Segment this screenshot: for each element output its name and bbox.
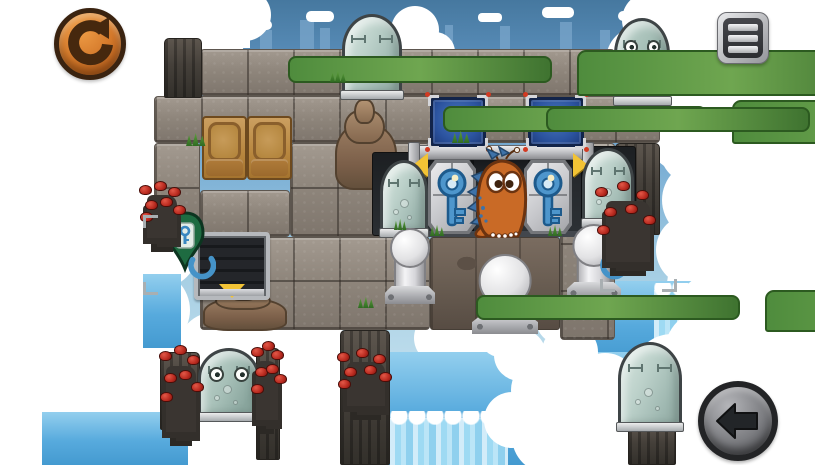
key-pickup[interactable] — [530, 163, 566, 231]
capsule-base — [613, 96, 672, 106]
dark-rock — [340, 330, 390, 465]
dark-rock — [256, 348, 280, 460]
glass-capsule[interactable] — [342, 14, 402, 98]
hamburger-icon — [723, 18, 763, 58]
cactus-plant — [732, 100, 815, 144]
grass-tuft — [548, 224, 564, 236]
entity-layer — [0, 0, 815, 465]
metal-tile — [524, 160, 572, 234]
piston[interactable] — [385, 228, 435, 304]
water — [42, 412, 188, 465]
city-skyline — [260, 18, 650, 56]
water — [545, 281, 705, 361]
creature-eye — [209, 367, 224, 382]
capsule-base — [379, 228, 429, 238]
corner-bracket-icon — [428, 95, 439, 106]
grass-tuft — [186, 132, 208, 146]
glass-capsule[interactable] — [380, 160, 428, 236]
metal-tile — [428, 160, 476, 234]
down-arrow-icon — [219, 284, 245, 298]
creature-eye — [234, 367, 249, 382]
current-swirl-icon — [598, 252, 628, 286]
wall-recess — [578, 146, 636, 228]
creature-eye — [624, 40, 638, 54]
boundary-bracket — [143, 282, 158, 295]
stone-platform — [200, 49, 615, 96]
grass-tuft — [394, 218, 408, 230]
grass-tuft — [430, 224, 446, 236]
water-layer — [0, 0, 815, 465]
berry-bush — [250, 344, 284, 420]
berry-bush — [594, 184, 662, 262]
door-bay — [419, 157, 583, 237]
glass-capsule[interactable] — [618, 342, 682, 430]
corner-bracket-icon — [477, 138, 488, 149]
yellow-arrow-icon — [413, 153, 428, 177]
back-button[interactable] — [698, 381, 778, 461]
cactus-plant — [765, 290, 815, 332]
glass-capsule[interactable] — [614, 18, 670, 104]
crate[interactable] — [202, 116, 247, 180]
rotate-ccw-icon — [59, 13, 121, 75]
cactus-plant — [577, 50, 815, 96]
restart-button[interactable] — [54, 8, 126, 80]
dark-rock — [164, 38, 202, 98]
creature-eye — [647, 40, 661, 54]
wall-recess — [372, 152, 432, 236]
piston[interactable] — [567, 224, 621, 300]
dark-rock — [160, 352, 200, 430]
glass-capsule[interactable] — [198, 348, 260, 420]
capsule-base — [196, 412, 262, 422]
corner-bracket-icon — [526, 138, 537, 149]
stone-platform — [200, 190, 290, 237]
stone-platform — [560, 143, 615, 340]
glass-capsule[interactable] — [582, 148, 634, 226]
rock-pile — [203, 298, 287, 331]
berry-bush — [158, 348, 204, 432]
cloud-mass — [0, 0, 815, 465]
water — [348, 352, 705, 465]
foreground-clouds — [0, 0, 815, 465]
dark-rock — [615, 143, 660, 235]
stone-platform — [154, 143, 200, 237]
yellow-arrow-icon — [573, 153, 588, 177]
berry-bush — [138, 183, 186, 238]
corner-bracket-icon — [477, 95, 488, 106]
menu-button[interactable] — [717, 12, 769, 64]
grass-tuft — [452, 130, 472, 143]
background-clouds — [0, 0, 815, 465]
grass-tuft — [358, 296, 376, 308]
piston[interactable] — [472, 254, 538, 334]
lock-indicator[interactable] — [612, 211, 654, 273]
water — [143, 274, 181, 348]
waterfall — [390, 418, 508, 465]
stone-platform — [154, 96, 660, 143]
brown-rock — [430, 237, 560, 330]
capsule-base — [340, 90, 404, 100]
capsule-base — [616, 422, 684, 432]
blue-panel[interactable] — [430, 97, 486, 147]
crate[interactable] — [247, 116, 292, 180]
corner-bracket-icon — [526, 95, 537, 106]
dino-character[interactable] — [466, 146, 538, 238]
capsule-base — [581, 218, 635, 228]
game-scene — [0, 0, 815, 465]
rock-pile — [335, 124, 397, 190]
small-sky-clouds — [248, 7, 644, 37]
current-swirl-icon — [186, 252, 216, 286]
key-pickup[interactable] — [434, 163, 470, 231]
corner-bracket-icon — [575, 138, 586, 149]
stone-platform — [290, 143, 430, 237]
dark-rock — [628, 424, 676, 465]
stone-platform — [200, 237, 430, 330]
corner-bracket-icon — [575, 95, 586, 106]
blue-panel[interactable] — [528, 97, 584, 147]
trapdoor[interactable] — [194, 232, 270, 300]
metal-rail — [411, 145, 591, 160]
berry-bush — [336, 350, 396, 406]
arrow-left-icon — [715, 401, 761, 441]
grass-tuft — [330, 70, 348, 82]
boundary-bracket — [600, 279, 615, 292]
boundary-bracket — [662, 279, 677, 292]
corner-bracket-icon — [428, 138, 439, 149]
boundary-bracket — [143, 215, 158, 228]
lock-indicator[interactable] — [164, 211, 206, 273]
waterfall — [654, 290, 702, 446]
